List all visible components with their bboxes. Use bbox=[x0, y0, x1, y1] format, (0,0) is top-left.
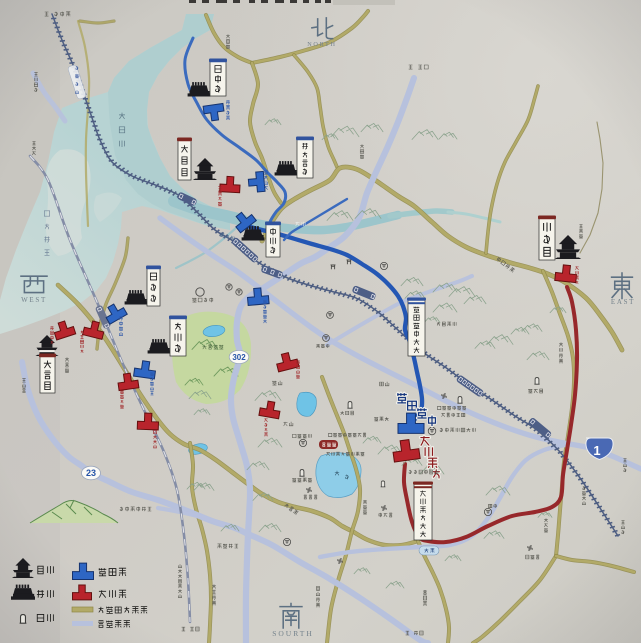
svg-text:SOURTH: SOURTH bbox=[272, 629, 314, 638]
svg-text:302: 302 bbox=[232, 353, 246, 362]
svg-text:23: 23 bbox=[86, 468, 96, 478]
svg-text:1: 1 bbox=[593, 443, 600, 458]
svg-text:WEST: WEST bbox=[21, 296, 47, 304]
svg-text:NORTH: NORTH bbox=[307, 41, 336, 48]
svg-text:EAST: EAST bbox=[611, 298, 635, 306]
